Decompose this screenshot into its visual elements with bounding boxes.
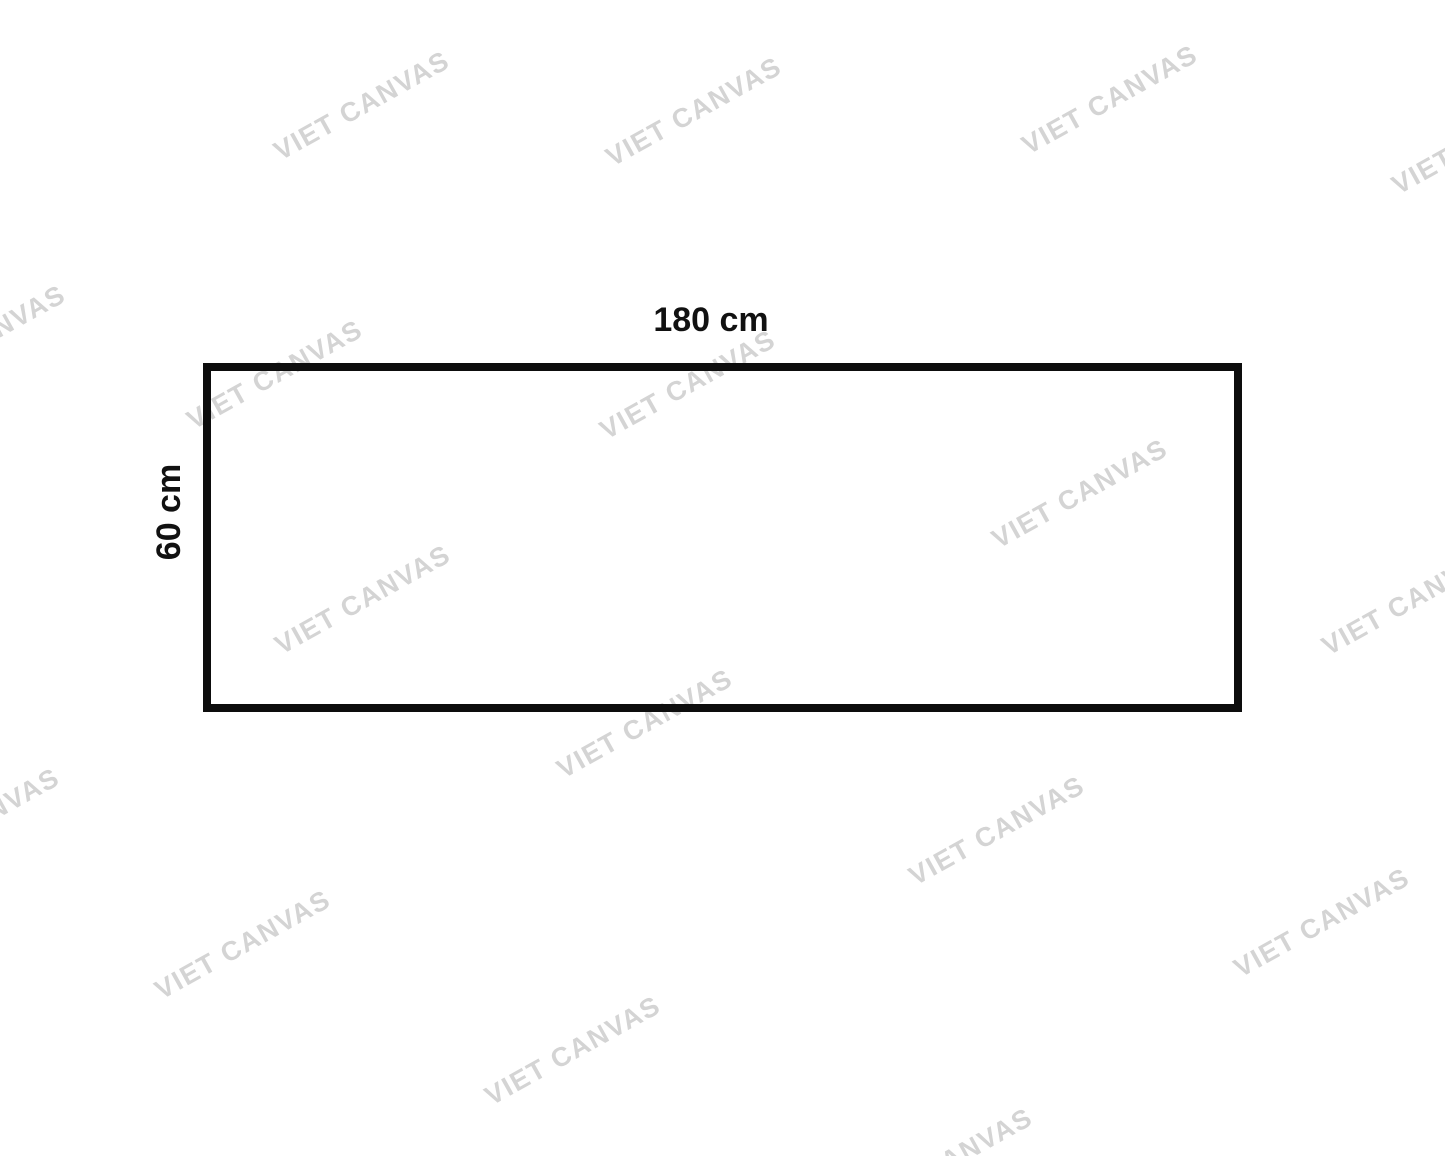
- watermark-text: VIET CANVAS: [150, 884, 336, 1006]
- width-dimension-label: 180 cm: [653, 303, 768, 337]
- watermark-text: VIET CANVAS: [904, 770, 1090, 892]
- watermark-text: VIET CANVAS: [1387, 79, 1445, 201]
- watermark-text: VIET CANVAS: [852, 1102, 1038, 1156]
- watermark-text: VIET CANVAS: [1317, 540, 1445, 662]
- watermark-text: VIET CANVAS: [1229, 862, 1415, 984]
- height-dimension-label: 60 cm: [152, 464, 186, 560]
- watermark-text: VIET CANVAS: [0, 279, 71, 401]
- watermark-text: VIET CANVAS: [1017, 39, 1203, 161]
- watermark-text: VIET CANVAS: [480, 990, 666, 1112]
- watermark-text: VIET CANVAS: [0, 762, 65, 884]
- watermark-text: VIET CANVAS: [269, 45, 455, 167]
- canvas-outline-rect: [203, 363, 1242, 712]
- watermark-text: VIET CANVAS: [601, 51, 787, 173]
- canvas-size-diagram: VIET CANVASVIET CANVASVIET CANVASVIET CA…: [0, 0, 1445, 1156]
